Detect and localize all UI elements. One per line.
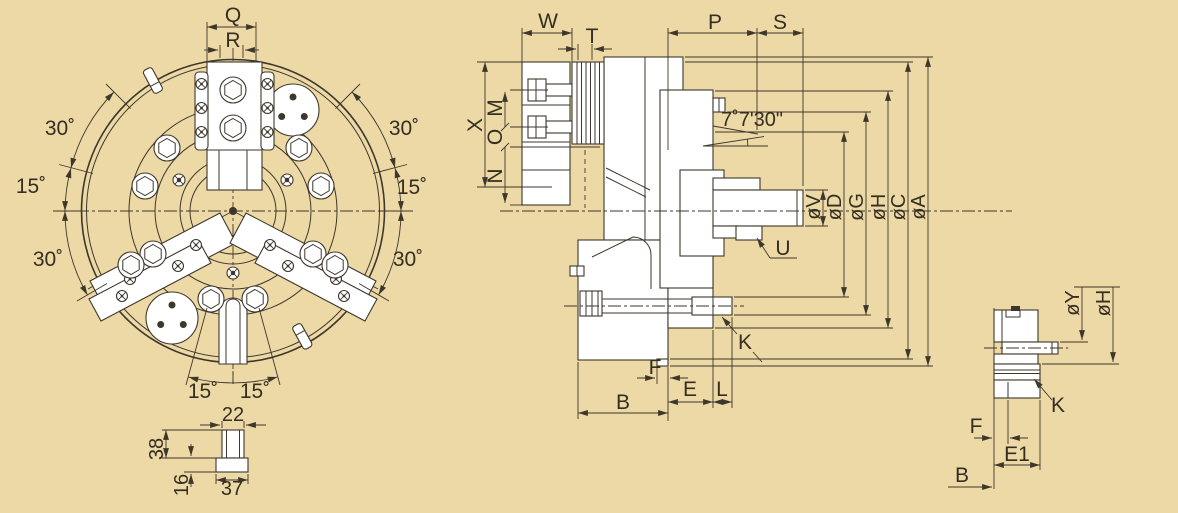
angle-label-lower-left: 30˚ xyxy=(33,248,63,271)
bottom-slot xyxy=(219,298,247,364)
dim-label-dia-c: øC xyxy=(888,194,910,221)
dim-label-r: R xyxy=(225,29,240,52)
detail-dim-f: F xyxy=(970,415,983,438)
dim-label-dia-g: øG xyxy=(846,193,868,221)
tube-nut xyxy=(736,226,762,240)
taper-angle-label: 7˚7'30" xyxy=(721,109,783,131)
detail-dim-e1: E1 xyxy=(1004,443,1030,466)
detail-view: øY øH K F E1 B xyxy=(948,287,1120,489)
radial-pin xyxy=(142,67,163,95)
tnut-height-lower: 16 xyxy=(171,474,193,496)
detail-upper-block xyxy=(994,310,1038,342)
dim-label-w: W xyxy=(538,10,558,33)
detail-dim-b: B xyxy=(955,464,969,487)
tnut-flange xyxy=(216,458,248,472)
dim-label-dia-a: øA xyxy=(908,194,930,220)
dim-label-l: L xyxy=(716,378,728,401)
dim-label-u: U xyxy=(775,237,790,260)
tnut-width-bottom: 37 xyxy=(221,478,243,500)
dim-label-p: P xyxy=(708,11,722,34)
tnut-width-top: 22 xyxy=(222,404,244,426)
dim-label-o: O xyxy=(484,129,507,145)
draw-tube xyxy=(713,190,803,226)
dim-label-f: F xyxy=(649,356,662,379)
angle-label-lower-right: 30˚ xyxy=(393,248,423,271)
dim-label-s: S xyxy=(773,11,787,34)
dim-label-dia-h: øH xyxy=(868,194,890,221)
dim-label-t: T xyxy=(586,25,599,48)
tnut-stem xyxy=(222,430,244,458)
dim-label-dia-d: øD xyxy=(824,194,846,221)
section-view: W T P S X M O N 7˚7'30" øV øD øG øH øC ø… xyxy=(464,10,1012,421)
chuck-drawing-canvas: Q R 30˚ 15˚ 30˚ 30˚ 15˚ 30˚ 15˚ 15˚ 22 3… xyxy=(0,0,1178,513)
technical-drawing-page: Q R 30˚ 15˚ 30˚ 30˚ 15˚ 30˚ 15˚ 15˚ 22 3… xyxy=(0,0,1178,513)
angle-label-mid-left: 15˚ xyxy=(16,175,46,198)
angle-label-upper-right: 30˚ xyxy=(389,117,419,140)
angle-label-bottom-left: 15˚ xyxy=(188,380,218,403)
detail-dim-dia-y: øY xyxy=(1062,290,1084,316)
detail-dim-dia-h: øH xyxy=(1093,290,1115,317)
detail-dim-k: K xyxy=(1051,394,1065,417)
angle-label-upper-left: 30˚ xyxy=(45,117,75,140)
dim-label-k: K xyxy=(738,331,752,354)
dim-label-b: B xyxy=(616,391,630,414)
detail-flange xyxy=(994,364,1040,380)
dim-label-dia-v: øV xyxy=(803,194,825,220)
angle-label-bottom-right: 15˚ xyxy=(240,380,270,403)
dim-label-m: M xyxy=(484,99,507,117)
dim-label-q: Q xyxy=(225,4,241,27)
angle-label-mid-right: 15˚ xyxy=(397,176,427,199)
radial-pin xyxy=(292,323,313,351)
front-view: Q R 30˚ 15˚ 30˚ 30˚ 15˚ 30˚ 15˚ 15˚ 22 3… xyxy=(16,4,427,500)
tnut-height-upper: 38 xyxy=(146,438,168,460)
dim-label-n: N xyxy=(484,168,507,183)
mount-bolt-head xyxy=(580,291,602,316)
dim-label-e: E xyxy=(683,378,697,401)
